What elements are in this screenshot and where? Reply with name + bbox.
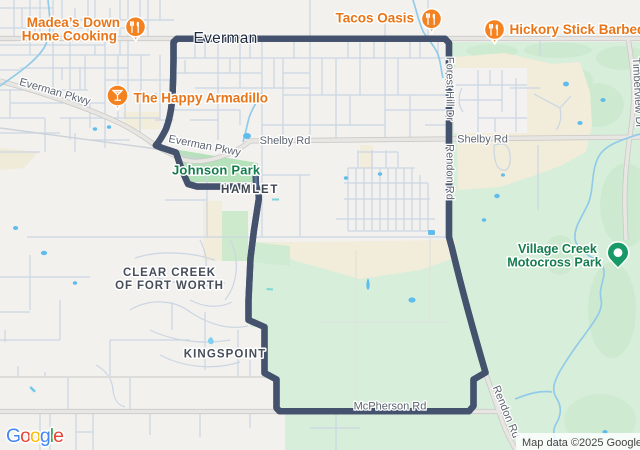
svg-text:Shelby Rd: Shelby Rd: [457, 134, 508, 146]
svg-text:KINGSPOINT: KINGSPOINT: [184, 349, 267, 361]
svg-text:McPherson Rd: McPherson Rd: [354, 401, 427, 413]
svg-text:Motocross Park: Motocross Park: [507, 256, 602, 270]
svg-text:The Happy Armadillo: The Happy Armadillo: [134, 90, 269, 105]
svg-text:Forest Hill Dr: Forest Hill Dr: [444, 57, 456, 122]
svg-text:Tacos Oasis: Tacos Oasis: [335, 11, 414, 26]
svg-text:Village Creek: Village Creek: [518, 242, 598, 256]
svg-text:OF FORT WORTH: OF FORT WORTH: [115, 280, 224, 292]
svg-text:Google: Google: [6, 425, 63, 447]
svg-text:Everman: Everman: [193, 30, 257, 47]
svg-text:Shelby Rd: Shelby Rd: [260, 135, 311, 147]
svg-text:Hickory Stick Barbeque: Hickory Stick Barbeque: [510, 22, 640, 37]
svg-text:Map data ©2025 Google: Map data ©2025 Google: [522, 437, 640, 449]
svg-text:HAMLET: HAMLET: [221, 184, 279, 196]
svg-text:Rendon Rd: Rendon Rd: [444, 144, 456, 200]
svg-text:CLEAR CREEK: CLEAR CREEK: [123, 267, 216, 279]
svg-text:Johnson Park: Johnson Park: [172, 163, 261, 178]
svg-text:Home Cooking: Home Cooking: [22, 29, 117, 44]
